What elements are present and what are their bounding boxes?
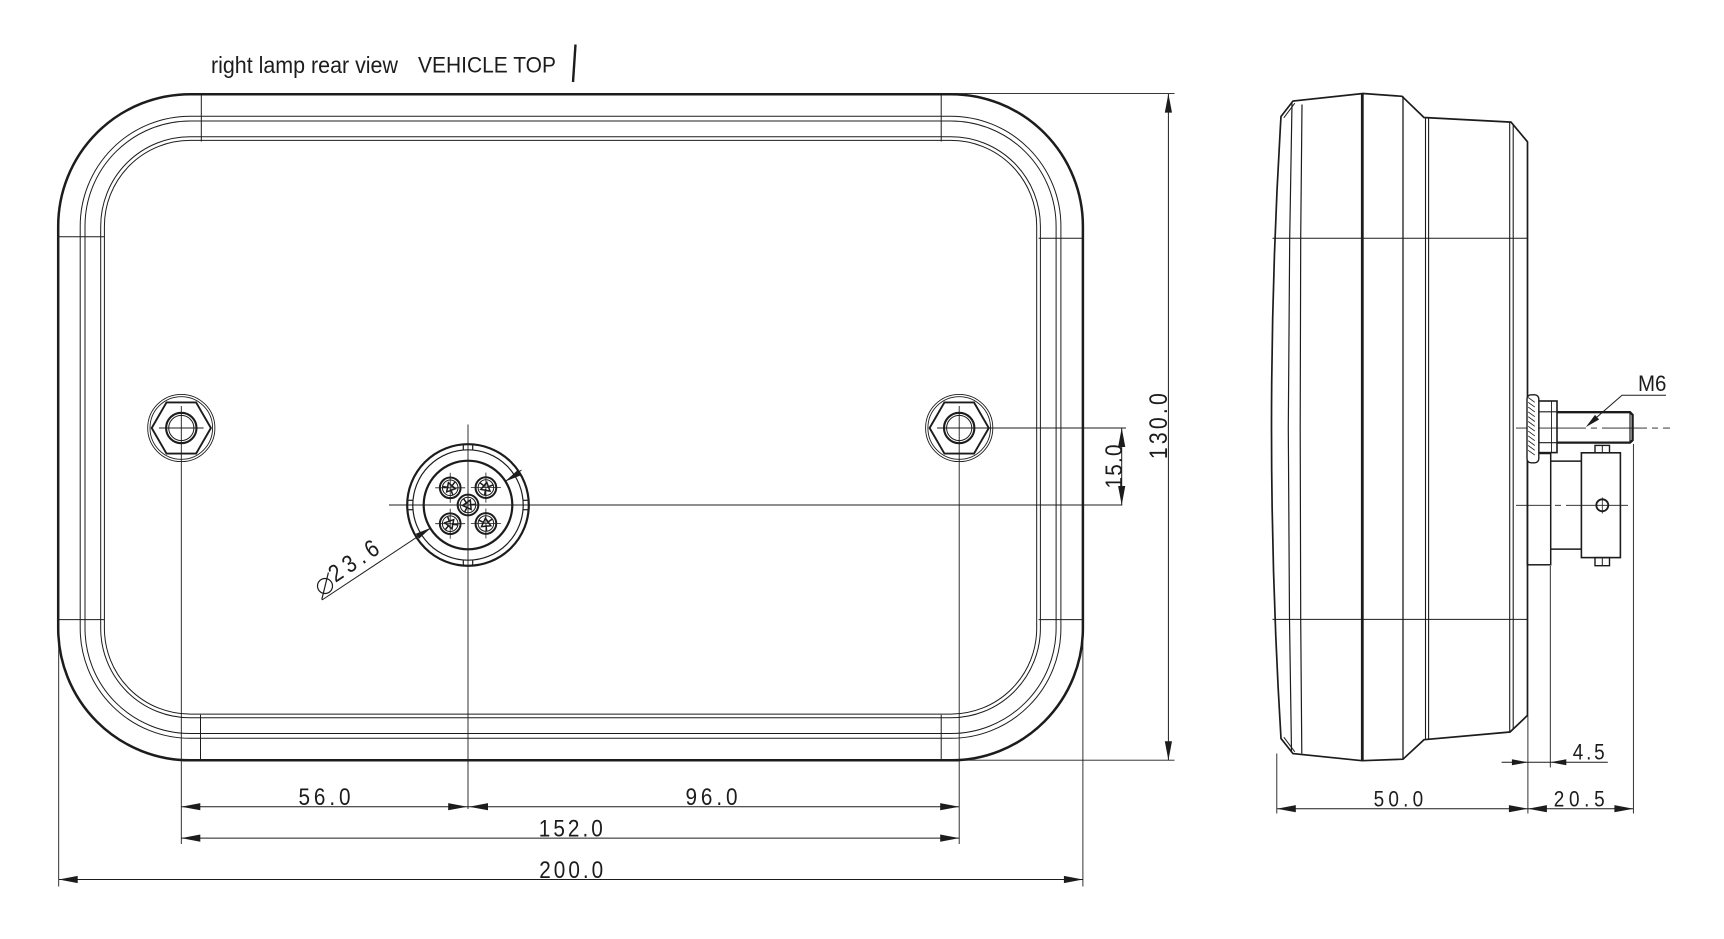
svg-text:VEHICLE TOP: VEHICLE TOP (418, 53, 556, 78)
svg-text:130.0: 130.0 (1144, 393, 1172, 459)
svg-text:M6: M6 (1638, 371, 1666, 396)
svg-text:20.5: 20.5 (1554, 787, 1605, 812)
svg-text:15.0: 15.0 (1100, 444, 1127, 488)
svg-text:96.0: 96.0 (685, 783, 737, 810)
svg-text:152.0: 152.0 (539, 815, 603, 842)
svg-text:50.0: 50.0 (1374, 787, 1423, 812)
svg-text:4.5: 4.5 (1573, 740, 1605, 765)
svg-text:200.0: 200.0 (539, 856, 603, 883)
svg-text:56.0: 56.0 (298, 783, 350, 810)
svg-text:right lamp rear view: right lamp rear view (211, 52, 399, 78)
